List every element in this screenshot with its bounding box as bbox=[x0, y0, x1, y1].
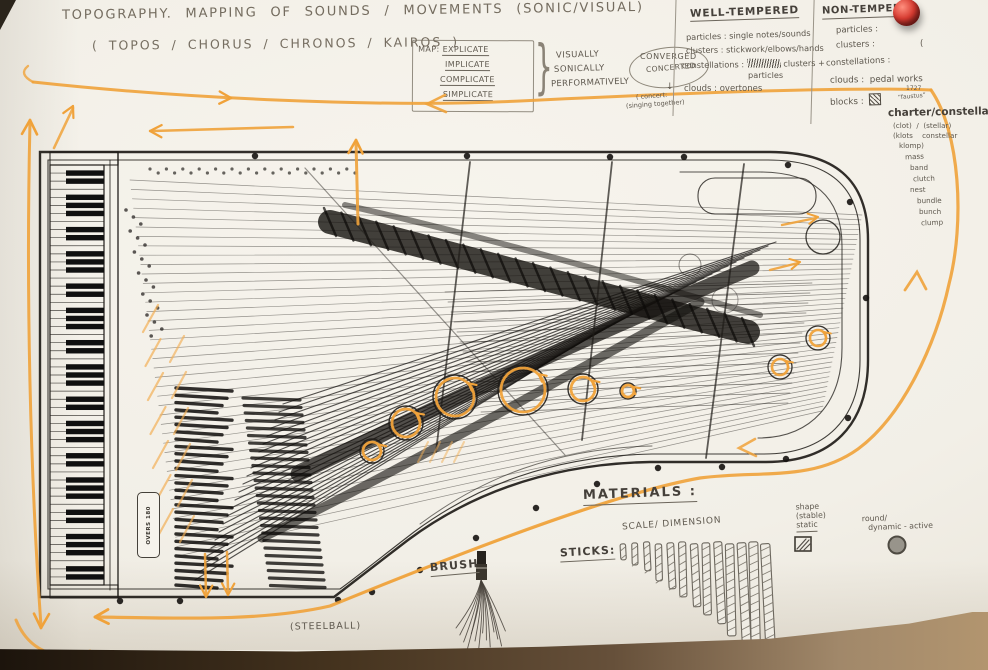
scribble-mark bbox=[747, 59, 781, 69]
note-line: (clot) / (stellar) bbox=[893, 122, 951, 130]
steelball-label: (STEELBALL) bbox=[290, 621, 361, 633]
synonym-item: clump bbox=[921, 219, 943, 228]
piano-plate-label: OVERS 180 bbox=[137, 492, 160, 558]
note-line: (klots constellar bbox=[893, 132, 957, 140]
synonym-item: nest bbox=[910, 186, 926, 194]
keyboard bbox=[50, 152, 118, 598]
charter-note: charter/constellation bbox=[888, 105, 988, 119]
note-line: clouds : overtones bbox=[684, 85, 762, 95]
note-line: ( bbox=[920, 40, 923, 50]
shape-note: shape (stable) static bbox=[796, 502, 827, 532]
synonym-item: bundle bbox=[917, 197, 942, 206]
synonym-item: mass bbox=[905, 153, 924, 162]
synonym-item: bunch bbox=[919, 208, 941, 216]
note-line: blocks : bbox=[830, 93, 882, 108]
material-glyphs bbox=[795, 537, 906, 554]
red-pushpin bbox=[893, 0, 920, 26]
synonym-item: band bbox=[910, 164, 928, 172]
synonym-item: clutch bbox=[913, 175, 935, 184]
note-line: klomp) bbox=[899, 142, 924, 150]
tuning-pins bbox=[124, 167, 356, 337]
mode-label: SONICALLY bbox=[554, 64, 605, 76]
note-line: clusters : bbox=[836, 40, 875, 51]
note-line: particles bbox=[748, 71, 783, 80]
round-note: round/ dynamic - active bbox=[862, 513, 933, 533]
photo-of-paper-diagram: TOPOGRAPHY. MAPPING OF SOUNDS / MOVEMENT… bbox=[0, 0, 988, 670]
brace-glyph: } bbox=[535, 34, 553, 102]
sticks-label: STICKS: bbox=[560, 545, 616, 563]
note-line: particles : bbox=[836, 25, 878, 36]
hatched-block-glyph bbox=[869, 93, 881, 105]
mode-label: VISUALLY bbox=[556, 50, 600, 61]
